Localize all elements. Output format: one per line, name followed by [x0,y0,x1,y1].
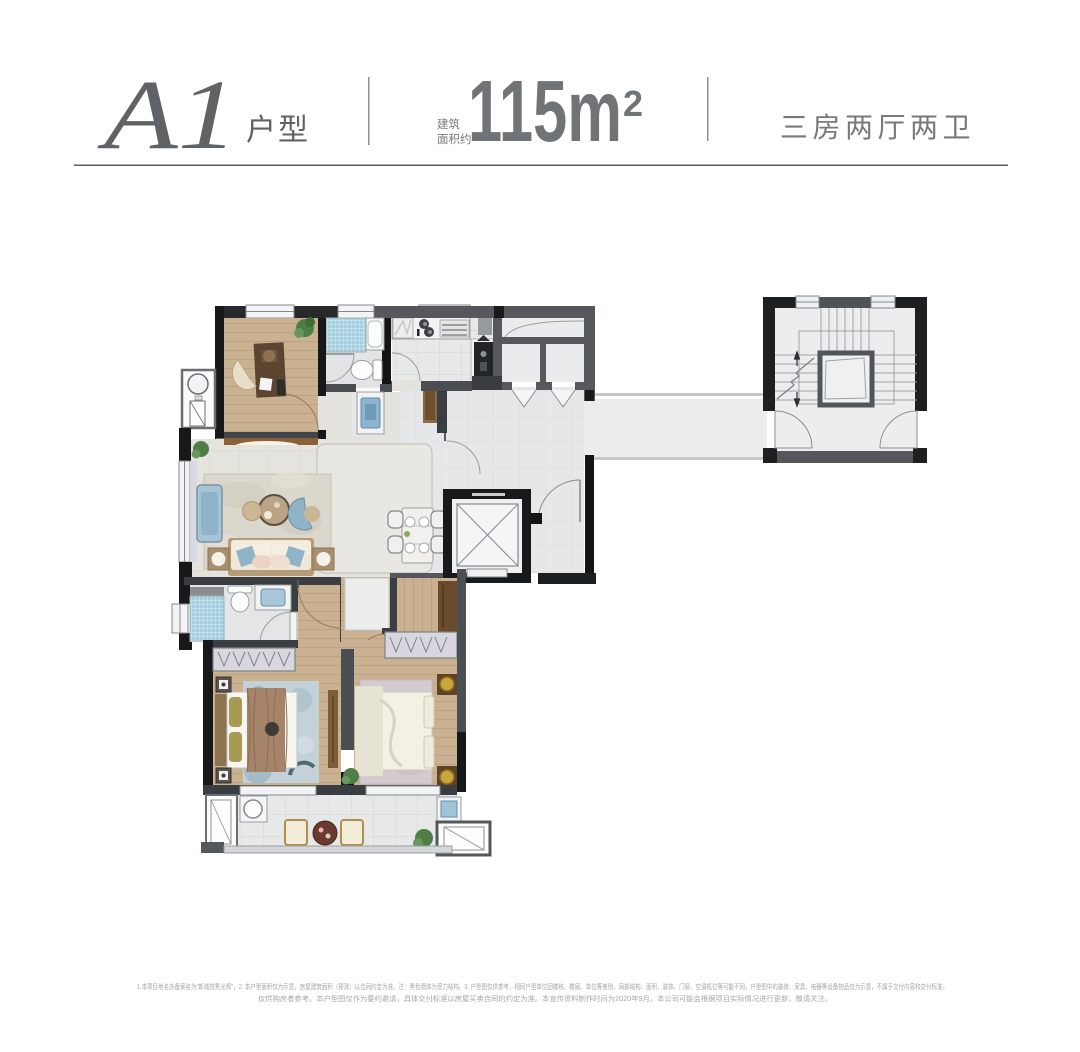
svg-text:115m: 115m [468,63,622,160]
svg-text:1.本项目地名办备案名为"新城悦隽光辉"，2. 本户型面积仅: 1.本项目地名办备案名为"新城悦隽光辉"，2. 本户型面积仅为示意，房屋建筑面积… [137,982,948,991]
svg-text:2: 2 [623,83,643,124]
svg-text:A1: A1 [97,59,238,170]
svg-text:户型: 户型 [246,114,310,147]
svg-text:三房两厅两卫: 三房两厅两卫 [780,112,975,143]
svg-text:面积约: 面积约 [437,132,472,146]
svg-text:建筑: 建筑 [437,117,460,131]
svg-text:仅供购房者参考。本户型图仅作为要约邀请，具体交付标准以房屋买: 仅供购房者参考。本户型图仅作为要约邀请，具体交付标准以房屋买卖合同的约定为准。本… [258,994,832,1003]
